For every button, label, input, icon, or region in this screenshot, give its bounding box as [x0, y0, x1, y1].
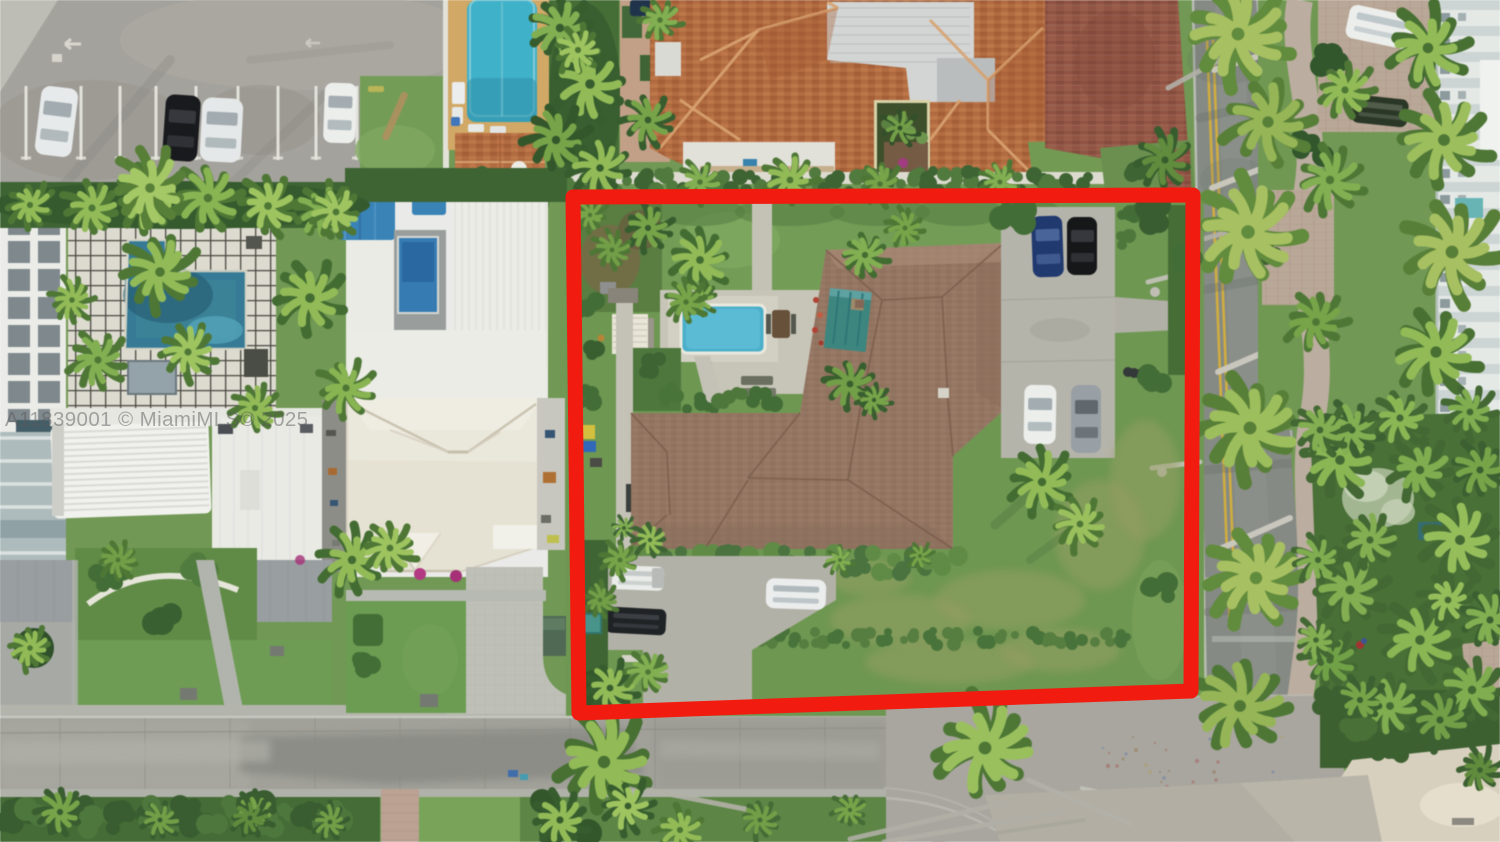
svg-text:A11839001 © MiamiMLS© 2025: A11839001 © MiamiMLS© 2025: [5, 408, 308, 431]
